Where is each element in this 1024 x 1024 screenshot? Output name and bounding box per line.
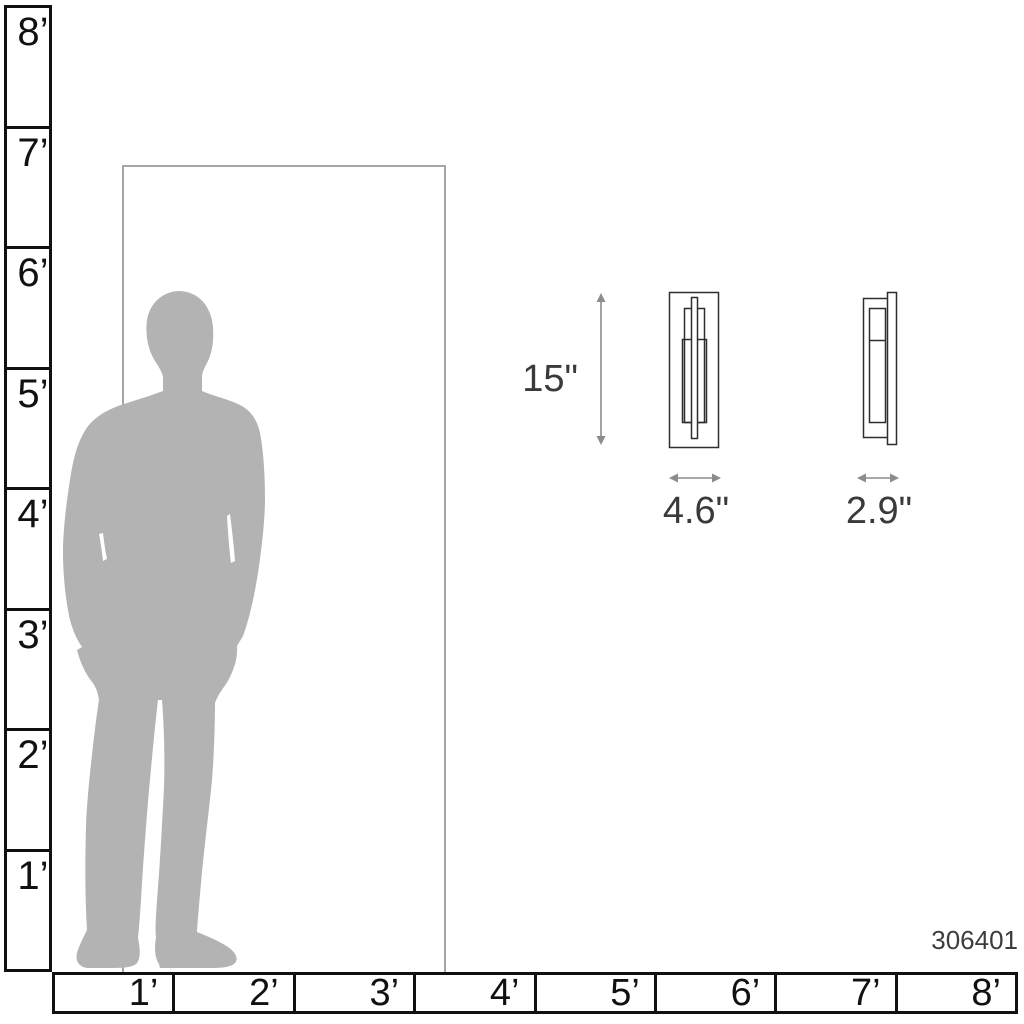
sconce-front-view bbox=[670, 293, 719, 448]
width-dimension-label: 4.6" bbox=[655, 490, 737, 533]
person-silhouette bbox=[63, 291, 265, 968]
arrow-head-right bbox=[712, 474, 721, 483]
arrow-head-down bbox=[597, 436, 606, 445]
arrow-head-left bbox=[857, 474, 866, 483]
width-dimension-arrow bbox=[669, 474, 721, 483]
arrow-head-left bbox=[669, 474, 678, 483]
depth-dimension-arrow bbox=[857, 474, 899, 483]
depth-dimension-label: 2.9" bbox=[838, 490, 920, 533]
product-code: 306401 bbox=[870, 925, 1018, 956]
sconce-side-light-bar bbox=[888, 293, 897, 445]
arrow-head-right bbox=[890, 474, 899, 483]
height-dimension-arrow bbox=[597, 293, 606, 445]
arrow-head-up bbox=[597, 293, 606, 302]
height-dimension-label: 15" bbox=[506, 357, 578, 401]
sconce-side-view bbox=[864, 293, 897, 445]
sconce-front-light-bar bbox=[692, 298, 698, 439]
